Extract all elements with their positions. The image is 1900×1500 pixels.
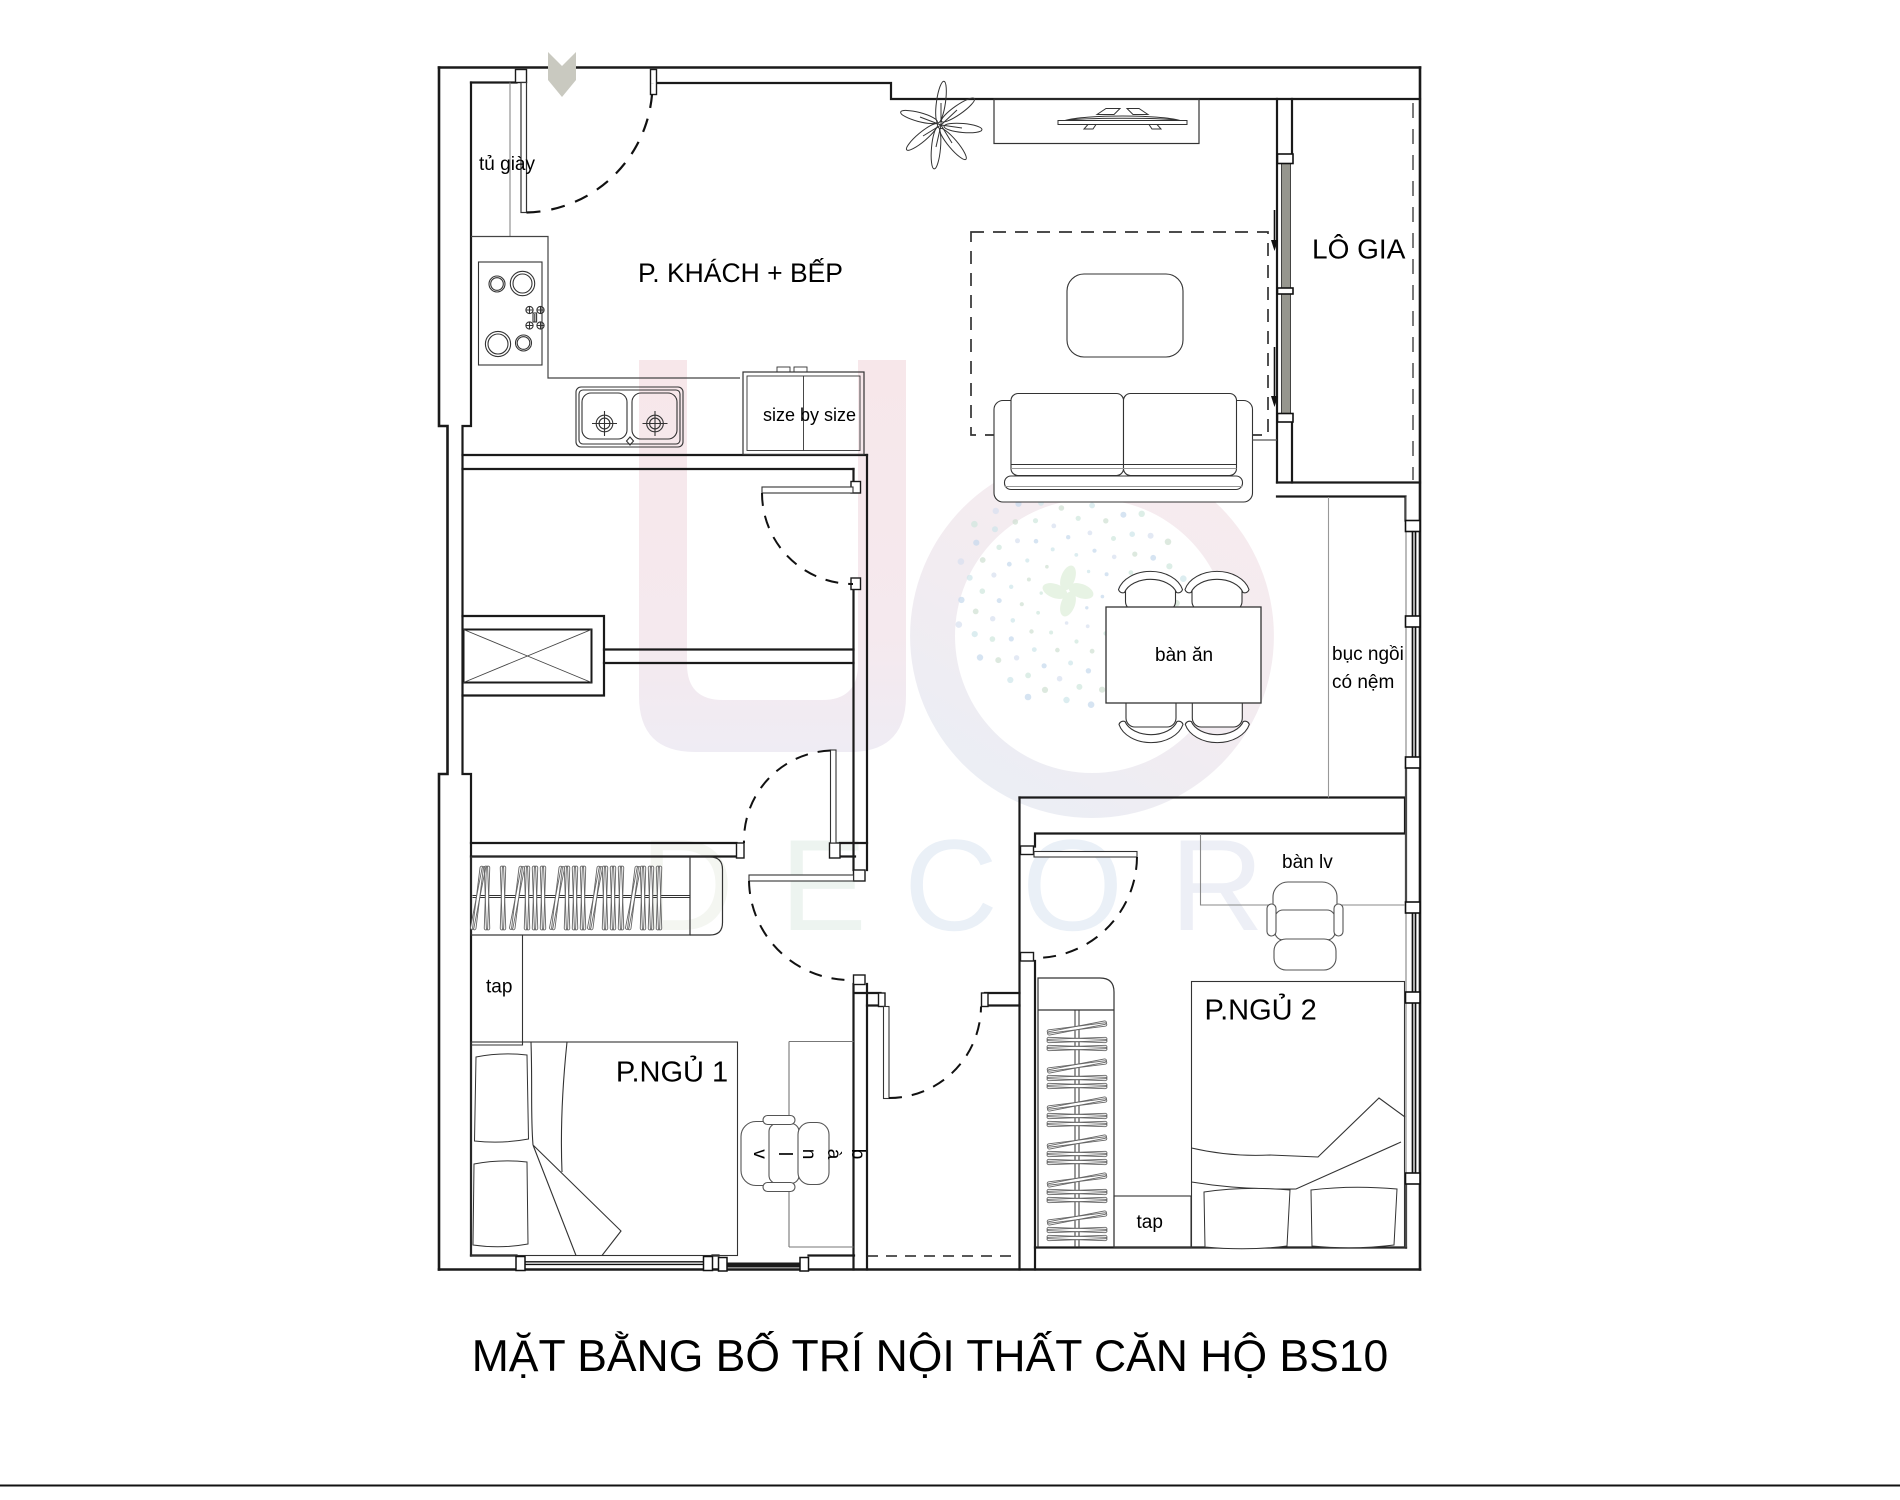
svg-text:có nệm: có nệm [1332, 672, 1394, 693]
svg-text:bàn ăn: bàn ăn [1155, 645, 1213, 666]
svg-text:l: l [774, 1152, 795, 1156]
svg-text:D: D [640, 812, 734, 958]
svg-text:tap: tap [1137, 1212, 1163, 1233]
svg-text:n: n [798, 1149, 819, 1160]
svg-text:bục ngồi: bục ngồi [1332, 644, 1404, 665]
svg-text:b: b [847, 1149, 868, 1160]
svg-text:P. KHÁCH + BẾP: P. KHÁCH + BẾP [638, 258, 843, 288]
svg-text:LÔ GIA: LÔ GIA [1312, 234, 1406, 265]
svg-text:v: v [749, 1149, 770, 1159]
svg-text:à: à [823, 1149, 844, 1160]
svg-text:P.NGỦ 1: P.NGỦ 1 [616, 1055, 728, 1089]
svg-text:MẶT BẰNG BỐ TRÍ NỘI THẤT CĂN H: MẶT BẰNG BỐ TRÍ NỘI THẤT CĂN HỘ BS10 [472, 1330, 1389, 1381]
svg-text:C: C [904, 812, 998, 958]
svg-text:tap: tap [486, 977, 512, 998]
svg-text:tủ giày: tủ giày [479, 154, 535, 175]
svg-text:size by size: size by size [763, 405, 856, 425]
svg-text:bàn lv: bàn lv [1282, 852, 1333, 873]
svg-text:P.NGỦ 2: P.NGỦ 2 [1205, 993, 1317, 1027]
